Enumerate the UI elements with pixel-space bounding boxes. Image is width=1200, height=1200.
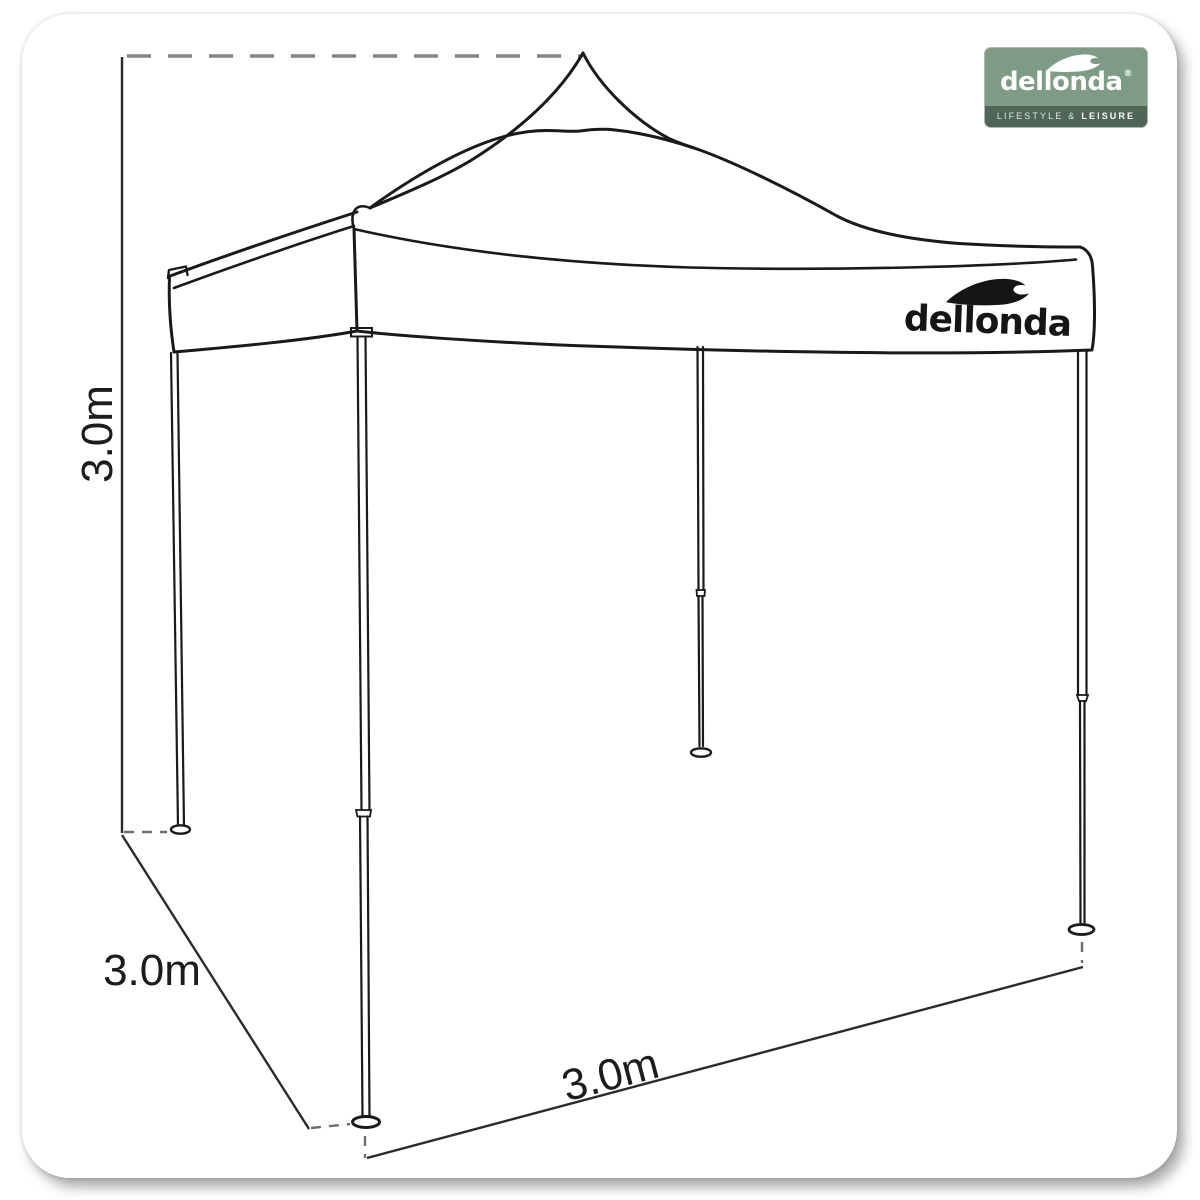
leg-rear-center-foot [691, 748, 711, 756]
leg-rear-left [171, 353, 190, 834]
leg-rear-center-joint [697, 590, 706, 596]
leg-front-center-foot [353, 1117, 380, 1128]
leg-front-center [351, 328, 380, 1128]
width-dimension-label: 3.0m [557, 1039, 664, 1111]
leg-rear-center [691, 347, 711, 757]
gazebo-dimension-diagram: 3.0m 3.0m 3.0m [0, 0, 1200, 1200]
valance-bottom-left [174, 331, 357, 352]
line-drawing: 3.0m 3.0m 3.0m [0, 0, 1200, 1200]
leg-front-right [1069, 351, 1094, 935]
leg-front-right-foot [1069, 925, 1094, 935]
width-dimension-line [367, 967, 1083, 1158]
canopy-logo-text: dellonda [903, 298, 1072, 345]
brand-wordmark: dellonda® [1000, 69, 1132, 95]
valance-top-seam-front [354, 229, 1076, 269]
roof-ridge-silhouette [370, 129, 1080, 247]
tagline-leisure: LEISURE [1081, 112, 1135, 121]
leg-rear-left-foot [171, 825, 190, 833]
brand-logo-badge: dellonda® LIFESTYLE & LEISURE [985, 48, 1147, 127]
brand-tagline: LIFESTYLE & LEISURE [985, 106, 1147, 127]
leg-front-center-joint [356, 810, 371, 817]
brand-name: dellonda [1000, 67, 1123, 97]
tagline-lifestyle: LIFESTYLE [997, 112, 1063, 121]
canopy-brand-print: dellonda [903, 275, 1072, 345]
dimension-lines [122, 56, 1083, 1158]
front-foot-dashed-tick-left [311, 1124, 350, 1128]
left-roof-edge-upper [170, 212, 357, 276]
tagline-ampersand: & [1068, 112, 1076, 121]
brand-logo-main: dellonda® [985, 48, 1147, 106]
gazebo-legs [171, 328, 1094, 1128]
valance-right-edge [1080, 247, 1095, 350]
height-dimension-label: 3.0m [73, 385, 122, 483]
leg-front-right-joint [1077, 695, 1088, 701]
registered-mark: ® [1124, 69, 1133, 79]
valance-front-left-edge [354, 229, 357, 331]
left-roof-edge-seam [174, 226, 354, 288]
depth-dimension-label: 3.0m [103, 946, 201, 995]
